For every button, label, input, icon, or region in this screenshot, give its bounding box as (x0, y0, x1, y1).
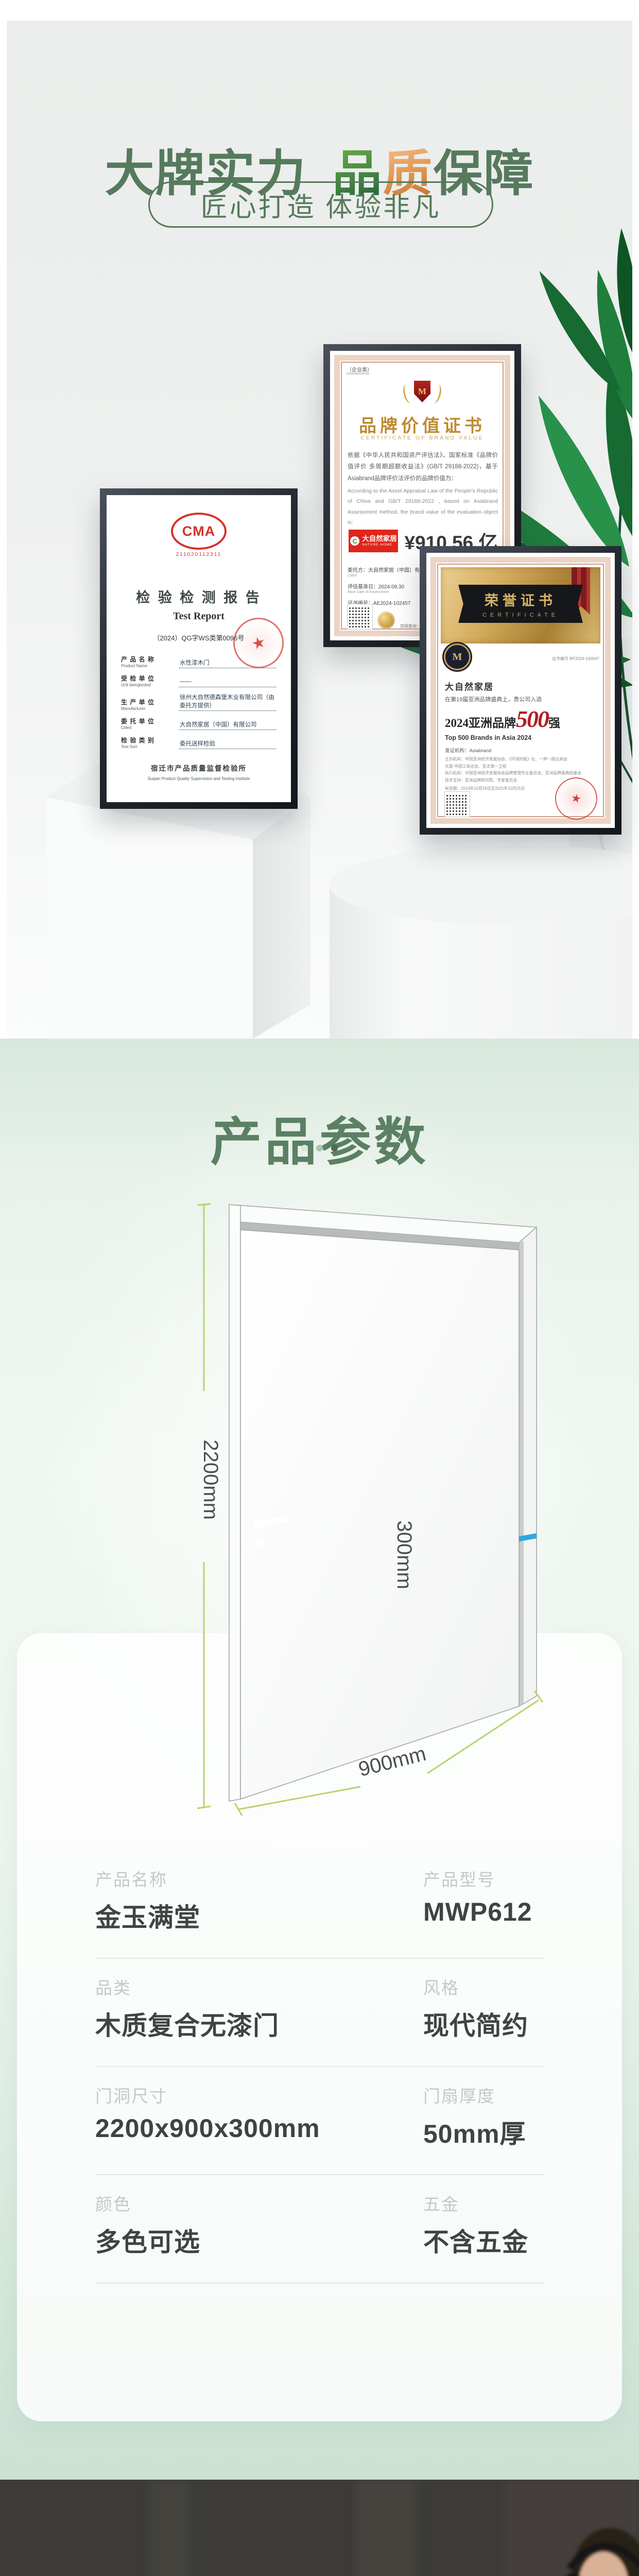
test-report-institute-en: Suqian Product Quality Supervision and T… (107, 776, 291, 781)
divider (95, 2066, 544, 2067)
param-item-category: 品类 木质复合无漆门 (95, 1974, 384, 2042)
nature-home-logo-zh: 大自然家居 (362, 535, 397, 543)
honor-intro-line: 在第19届亚洲品牌盛典上，贵公司入选 (445, 695, 542, 703)
cma-number: 211020112311 (107, 552, 291, 557)
medal-icon: M (401, 378, 444, 408)
divider (95, 1958, 544, 1959)
test-report-fields: 产 品 名 称Product Name 水性漆木门 受 检 单 位Unit be… (121, 655, 277, 749)
field-row: 委 托 单 位Client 大自然家居（中国）有限公司 (121, 717, 277, 730)
field-row: 生 产 单 位Manufacturer 徐州大自然德森堡木业有限公司（由委托方提… (121, 693, 277, 711)
test-report-paper: CMA 211020112311 检 验 检 测 报 告 Test Report… (107, 495, 291, 802)
honor-award-line: 2024亚洲品牌500强 (445, 705, 560, 733)
param-item-name: 产品名称 金玉满堂 (95, 1866, 384, 1934)
cma-logo: CMA (171, 513, 227, 550)
qr-code-icon (445, 792, 470, 817)
honor-award-line-en: Top 500 Brands in Asia 2024 (445, 734, 531, 741)
nature-home-logo-en: NATURE HOME (362, 543, 397, 547)
medal-shield: M (414, 381, 430, 402)
honor-banner-title-en: CERTIFICATE (482, 612, 559, 618)
gold-seal-icon (377, 612, 395, 629)
param-item-style: 风格 现代简约 (423, 1974, 639, 2042)
honor-gold-plaque: 荣誉证书 CERTIFICATE (441, 567, 600, 643)
brand-cert-paragraph-zh: 依据《中华人民共和国资产评估法》、国家标准《品牌价值评价 多周期超额收益法》(G… (348, 450, 498, 484)
param-item-opening-size: 门洞尺寸 2200x900x300mm (95, 2082, 384, 2143)
dim-depth-label: 300mm (393, 1520, 416, 1589)
param-item-hardware: 五金 不含五金 (423, 2191, 639, 2259)
door-leaf (240, 1230, 519, 1799)
honor-issuer: 发证机构：Asiabrand (445, 747, 491, 754)
dim-height-label: 2200mm (199, 1439, 222, 1520)
brand-cert-title-en: CERTIFICATE OF BRAND VALUE (330, 435, 514, 441)
service-photo-backdrop (0, 2480, 639, 2576)
param-item-model: 产品型号 MWP612 (423, 1866, 639, 1927)
divider (95, 2282, 544, 2283)
honor-cert-paper: 荣誉证书 CERTIFICATE M 证书编号 BP2024-100047 大自… (426, 553, 615, 828)
field-row: 检 验 类 别Test Sort 委托送样检验 (121, 736, 277, 749)
test-report-title: 检 验 检 测 报 告 (107, 586, 291, 606)
field-row: 受 检 单 位Unit beingtested —— (121, 674, 277, 687)
nature-home-logo: C 大自然家居 NATURE HOME (349, 530, 398, 552)
medal-icon: M (444, 643, 471, 670)
param-item-thickness: 门扇厚度 50mm厚 (423, 2082, 639, 2150)
brand-cert-category-underline (347, 372, 369, 375)
office-backdrop (149, 2480, 638, 2576)
qr-code-icon (348, 604, 372, 629)
page: 大牌实力 品质保障 匠心打造 体验非凡 (0, 0, 639, 2576)
divider (95, 2174, 544, 2175)
honor-banner: 荣誉证书 CERTIFICATE (458, 585, 583, 623)
certificate-honor: 荣誉证书 CERTIFICATE M 证书编号 BP2024-100047 大自… (420, 546, 621, 835)
nature-home-logo-c: C (350, 536, 359, 546)
honor-cert-number: 证书编号 BP2024-100047 (552, 656, 599, 662)
brand-cert-paragraph-en: According to the Asset Appraisal Law of … (348, 486, 498, 528)
certificate-test-report: CMA 211020112311 检 验 检 测 报 告 Test Report… (100, 488, 298, 809)
brand-cert-category: （企业类） (347, 365, 372, 373)
test-report-institute: 宿迁市产品质量监督检验所 (107, 762, 291, 773)
honor-banner-title: 荣誉证书 (485, 589, 557, 609)
honor-brand-name: 大自然家居 (445, 680, 494, 692)
honor-validity: 有效期：2024年10月26日至2025年10月25日 (445, 786, 525, 791)
pedestal-cylinder (330, 845, 632, 1039)
param-item-color: 颜色 多色可选 (95, 2191, 384, 2259)
door-diagram: 2200mm 300mm 900mm (0, 1030, 639, 1906)
brand-cert-title: 品牌价值证书 (330, 412, 514, 437)
